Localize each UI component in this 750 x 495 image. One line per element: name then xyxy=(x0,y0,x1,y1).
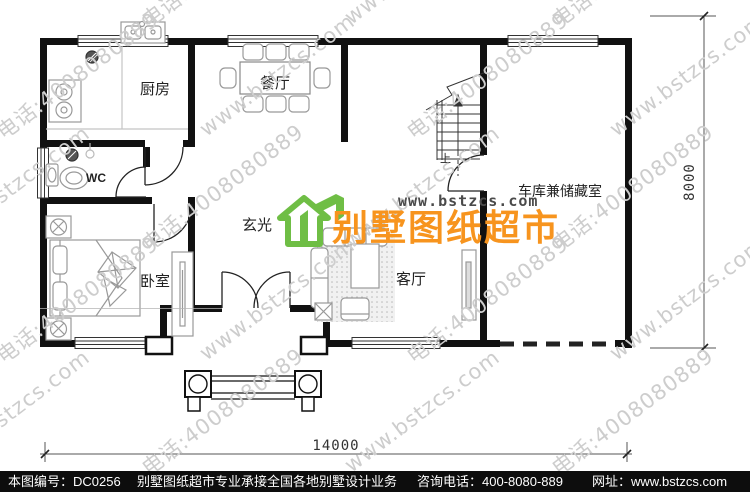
wc-floor-drain xyxy=(66,149,78,161)
label-foyer: 玄光 xyxy=(242,217,272,234)
bedroom-door xyxy=(154,204,192,242)
site-logo: www.bstzcs.com 别墅图纸超市 xyxy=(274,192,560,250)
dimension-width-label: 14000 xyxy=(312,438,359,454)
tv-cabinet xyxy=(462,250,476,320)
footer-bar: 本图编号：DC0256 别墅图纸超市专业承接全国各地别墅设计业务 咨询电话：40… xyxy=(0,471,750,492)
footer-drawing-number: 本图编号：DC0256 xyxy=(8,471,121,492)
bedroom-furniture xyxy=(46,216,193,340)
dimension-height-label: 8000 xyxy=(682,163,698,201)
wc-light xyxy=(86,150,94,158)
side-table xyxy=(315,303,332,320)
kitchen-floor-drain xyxy=(86,51,98,63)
kitchen-stove xyxy=(49,80,81,122)
footer-phone: 咨询电话：400-8080-889 xyxy=(417,471,563,492)
wc-toilet xyxy=(60,167,88,189)
footer-slogan: 别墅图纸超市专业承接全国各地别墅设计业务 xyxy=(137,471,397,492)
logo-site-name: 别墅图纸超市 xyxy=(332,210,560,246)
label-kitchen: 厨房 xyxy=(140,81,170,98)
porch-column-foot-right xyxy=(302,397,314,411)
stair-up-arrow-head xyxy=(454,95,462,106)
label-dining: 餐厅 xyxy=(260,75,290,92)
wc-door xyxy=(116,167,146,197)
window-top-3 xyxy=(508,36,598,47)
footer-website: 网址：www.bstzcs.com xyxy=(592,471,727,492)
pilaster-right xyxy=(301,337,327,354)
label-bedroom: 卧室 xyxy=(140,273,170,290)
pilaster-left xyxy=(146,337,172,354)
label-living: 客厅 xyxy=(396,271,426,288)
label-stair-up: 上 xyxy=(440,152,451,165)
wardrobe xyxy=(172,252,193,336)
floor-plan-page: 14000 8000 厨房 餐厅 WC 卧室 玄光 客厅 车库兼储藏室 上 ww… xyxy=(0,0,750,495)
porch xyxy=(146,337,327,411)
porch-steps xyxy=(211,376,295,399)
coffee-table xyxy=(351,244,379,288)
entry-double-door xyxy=(222,272,290,308)
kitchen-sink xyxy=(121,22,165,44)
porch-column-foot-left xyxy=(188,397,200,411)
window-bedroom-south xyxy=(75,338,145,349)
garage-access-door xyxy=(448,155,484,191)
kitchen-door xyxy=(145,147,183,185)
staircase xyxy=(426,72,486,176)
label-wc: WC xyxy=(86,171,106,185)
window-living-south xyxy=(352,338,440,349)
bed xyxy=(50,240,140,316)
armchair xyxy=(341,298,369,320)
